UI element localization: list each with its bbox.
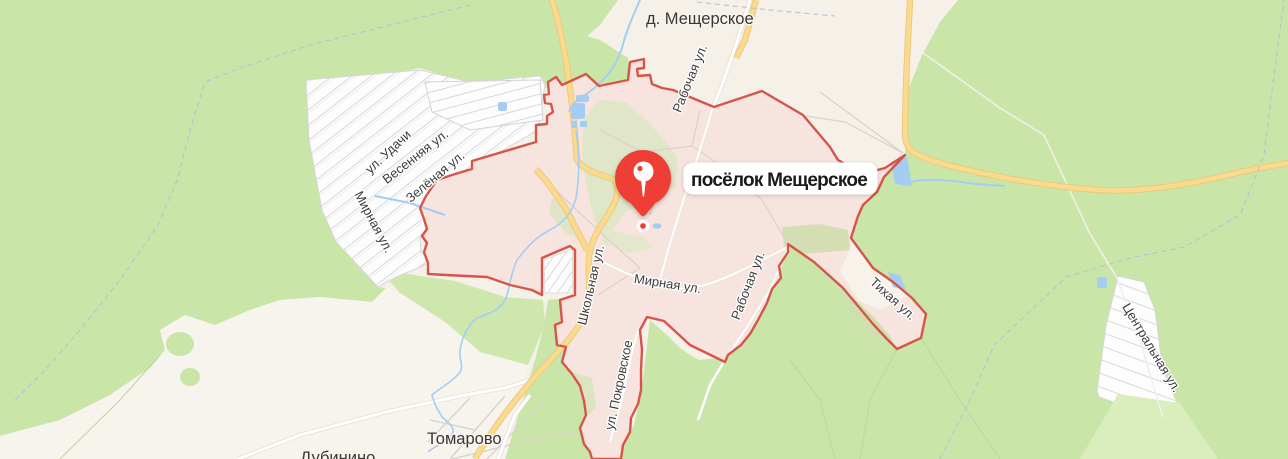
svg-text:Дубинино: Дубинино — [300, 449, 375, 459]
svg-text:Томарово: Томарово — [427, 430, 502, 448]
svg-text:д. Мещерское: д. Мещерское — [646, 10, 754, 28]
svg-text:посёлок Мещерское: посёлок Мещерское — [691, 170, 867, 191]
